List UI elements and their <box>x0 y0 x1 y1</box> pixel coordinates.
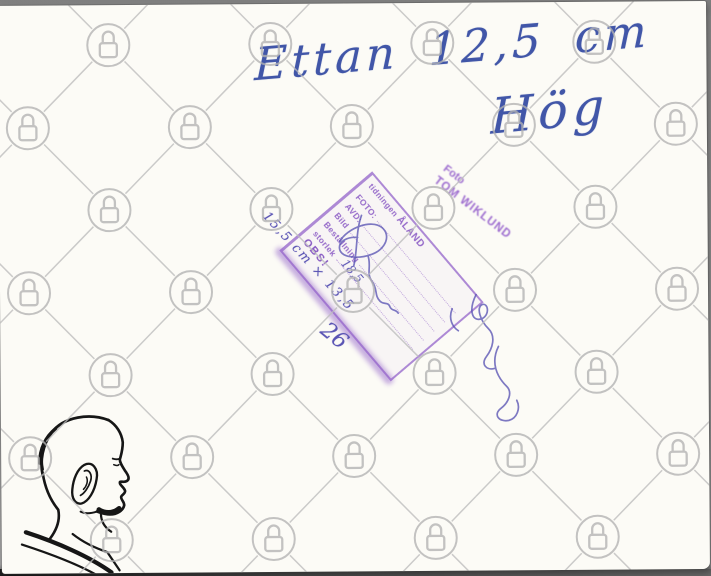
man-profile-illustration <box>11 411 144 574</box>
padlock-icon <box>171 436 213 478</box>
padlock-icon <box>89 354 131 396</box>
padlock-icon <box>8 272 50 314</box>
padlock-icon <box>577 516 619 558</box>
padlock-icon <box>495 434 537 476</box>
padlock-icon <box>169 106 211 148</box>
padlock-icon <box>574 186 616 228</box>
padlock-icon <box>494 269 536 311</box>
padlock-icon <box>253 518 295 560</box>
padlock-icon <box>656 268 698 310</box>
padlock-icon <box>331 105 373 147</box>
padlock-icon <box>575 351 617 393</box>
handwritten-note-line2: Hög <box>491 77 610 145</box>
padlock-icon <box>170 271 212 313</box>
padlock-icon <box>87 24 129 66</box>
padlock-icon <box>415 517 457 559</box>
padlock-icon <box>657 433 699 475</box>
padlock-icon <box>333 435 375 477</box>
padlock-icon <box>7 107 49 149</box>
padlock-icon <box>88 189 130 231</box>
padlock-icon <box>655 103 697 145</box>
archive-stamp: tidningenÅLAND FOTO: AVD: Bild Beställni… <box>279 171 483 381</box>
padlock-icon <box>251 353 293 395</box>
photographer-credit-stamp: Foto TOM WIKLUND <box>431 163 523 243</box>
photo-back-paper: tidningenÅLAND FOTO: AVD: Bild Beställni… <box>0 1 710 574</box>
padlock-icon <box>413 352 455 394</box>
